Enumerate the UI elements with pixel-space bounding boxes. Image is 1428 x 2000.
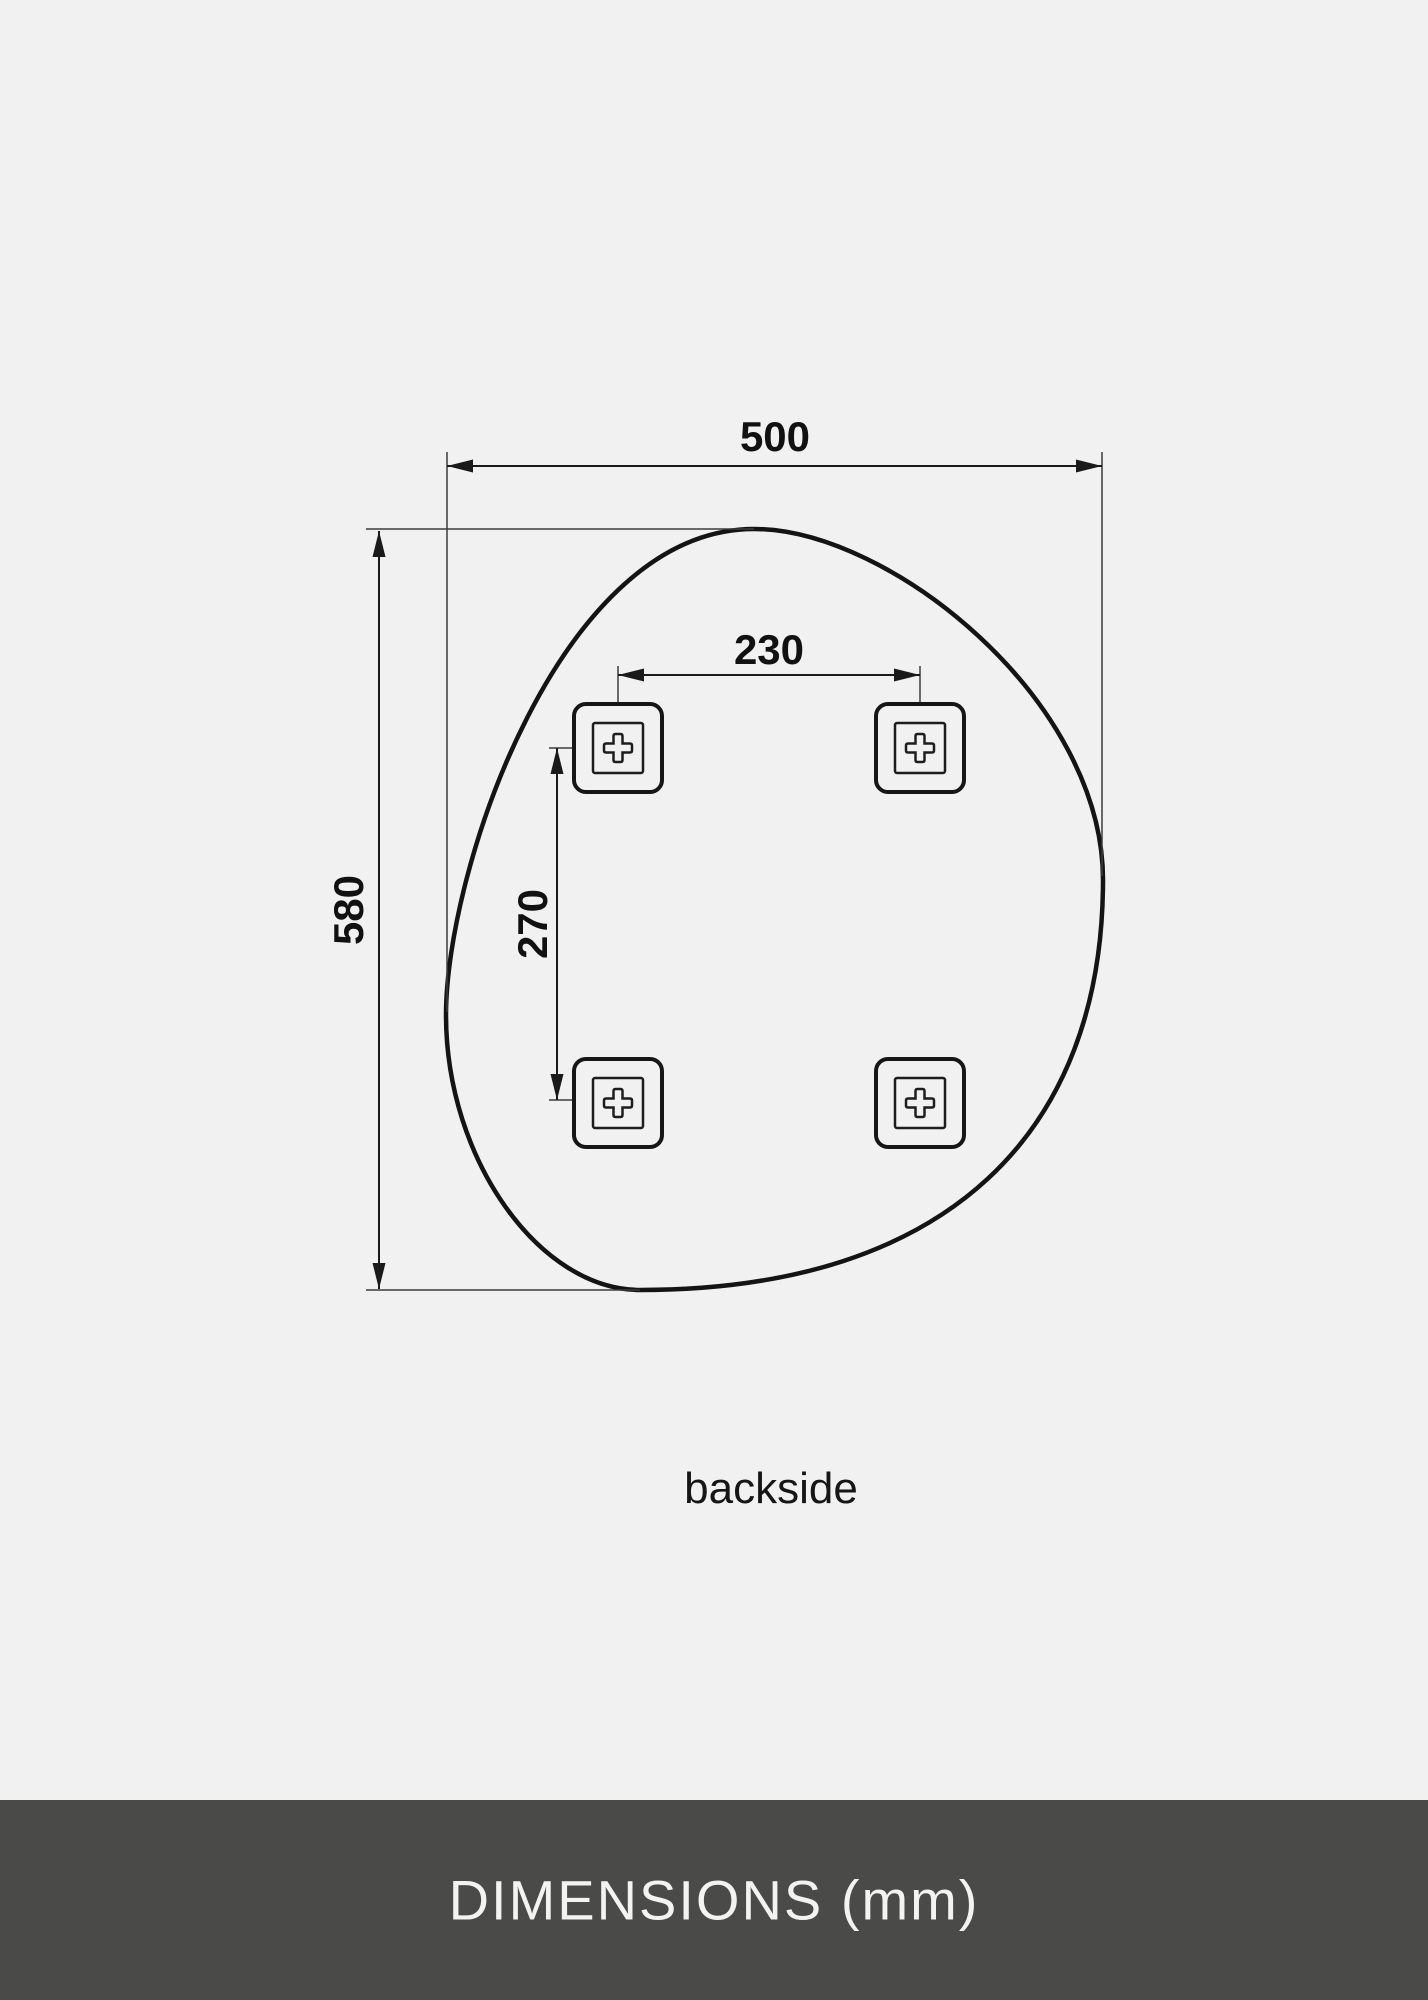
mount-bracket-top-left (574, 704, 662, 792)
arrow-left-icon (447, 460, 473, 473)
arrow-down-icon (551, 1074, 564, 1100)
mount-bracket-bottom-right (876, 1059, 964, 1147)
mount-bracket-top-right (876, 704, 964, 792)
hole-spacing-h-value: 230 (734, 626, 804, 673)
height-value: 580 (325, 875, 372, 945)
dimension-hole-spacing-vertical: 270 (509, 748, 574, 1100)
arrow-right-icon (1076, 460, 1102, 473)
dimension-hole-spacing-horizontal: 230 (618, 626, 920, 704)
arrow-up-icon (551, 748, 564, 774)
arrow-down-icon (373, 1263, 386, 1289)
mount-bracket-bottom-left (574, 1059, 662, 1147)
product-dimension-page: 500 580 230 270 (0, 0, 1428, 2000)
footer: DIMENSIONS (mm) (0, 1800, 1428, 2000)
arrow-right-icon (894, 669, 920, 682)
width-value: 500 (740, 413, 810, 460)
hole-spacing-v-value: 270 (509, 889, 556, 959)
arrow-up-icon (373, 531, 386, 557)
view-label: backside (684, 1464, 858, 1513)
dimension-diagram: 500 580 230 270 (0, 0, 1428, 2000)
arrow-left-icon (618, 669, 644, 682)
footer-title: DIMENSIONS (mm) (449, 1869, 980, 1932)
